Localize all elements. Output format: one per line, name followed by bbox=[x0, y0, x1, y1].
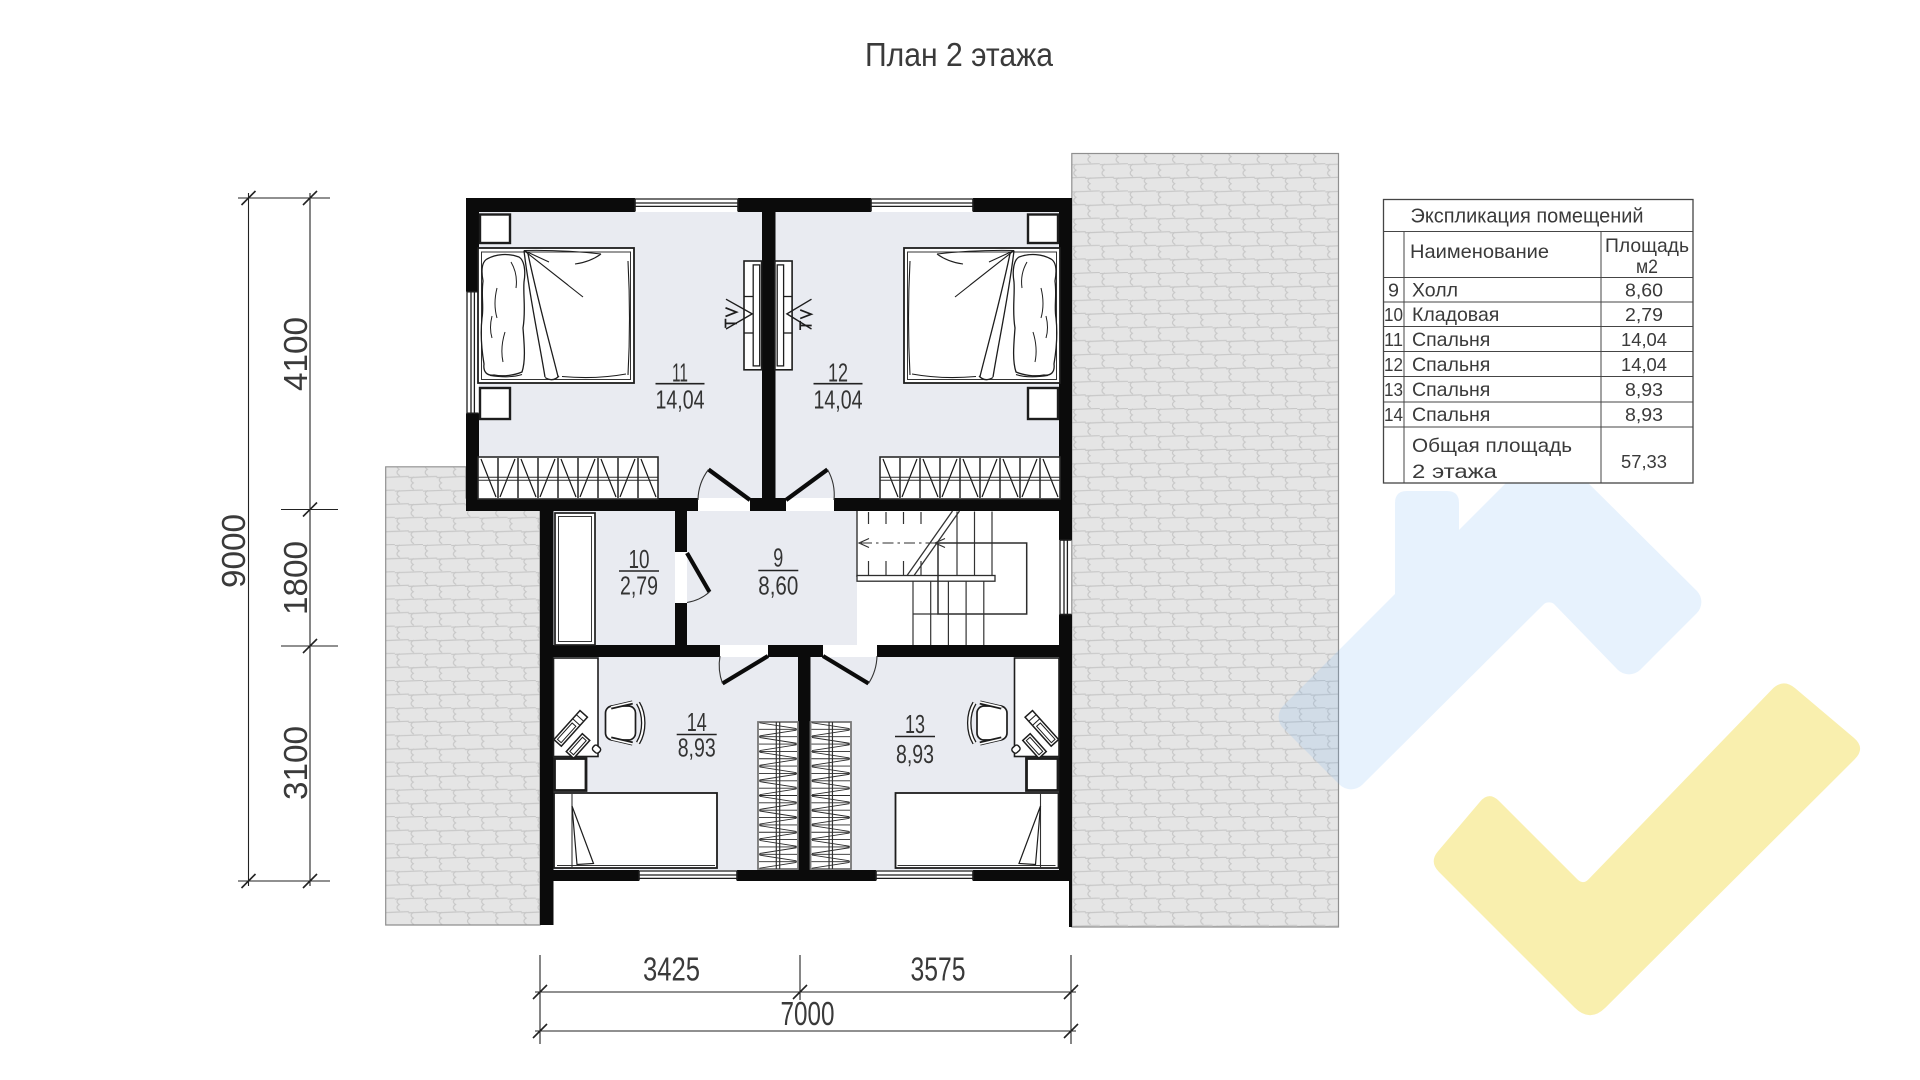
svg-text:8,93: 8,93 bbox=[678, 733, 716, 763]
svg-text:3100: 3100 bbox=[277, 726, 314, 800]
svg-text:14,04: 14,04 bbox=[656, 385, 705, 415]
svg-text:Холл: Холл bbox=[1412, 280, 1458, 302]
svg-text:9000: 9000 bbox=[215, 514, 252, 588]
svg-text:10: 10 bbox=[629, 544, 650, 574]
svg-text:3425: 3425 bbox=[643, 951, 700, 988]
svg-text:2,79: 2,79 bbox=[1625, 304, 1663, 325]
svg-text:7000: 7000 bbox=[781, 995, 835, 1032]
svg-text:9: 9 bbox=[773, 543, 783, 573]
svg-text:3575: 3575 bbox=[911, 951, 966, 988]
svg-text:Кладовая: Кладовая bbox=[1412, 304, 1499, 326]
svg-text:14,04: 14,04 bbox=[1621, 354, 1667, 375]
svg-text:2 этажа: 2 этажа bbox=[1412, 461, 1497, 483]
svg-text:11: 11 bbox=[1384, 329, 1403, 350]
svg-text:10: 10 bbox=[1384, 304, 1403, 325]
svg-text:57,33: 57,33 bbox=[1621, 451, 1667, 472]
svg-text:14,04: 14,04 bbox=[814, 385, 863, 415]
svg-text:13: 13 bbox=[905, 709, 925, 739]
svg-text:Наименование: Наименование bbox=[1410, 241, 1549, 263]
svg-text:Спальня: Спальня bbox=[1412, 329, 1490, 351]
svg-text:Общая площадь: Общая площадь bbox=[1412, 435, 1572, 457]
svg-text:13: 13 bbox=[1384, 379, 1403, 400]
svg-text:8,60: 8,60 bbox=[1625, 280, 1663, 301]
svg-text:14: 14 bbox=[1384, 404, 1403, 425]
svg-text:8,60: 8,60 bbox=[758, 571, 798, 601]
svg-text:м2: м2 bbox=[1636, 256, 1658, 278]
svg-text:Спальня: Спальня bbox=[1412, 404, 1490, 426]
svg-text:8,93: 8,93 bbox=[896, 739, 934, 769]
svg-text:Площадь: Площадь bbox=[1605, 235, 1689, 257]
svg-text:Экспликация помещений: Экспликация помещений bbox=[1411, 206, 1644, 228]
svg-text:План 2 этажа: План 2 этажа bbox=[865, 36, 1054, 73]
svg-text:14,04: 14,04 bbox=[1621, 329, 1667, 350]
svg-text:12: 12 bbox=[1384, 354, 1403, 375]
svg-text:1800: 1800 bbox=[277, 541, 314, 615]
svg-text:2,79: 2,79 bbox=[620, 571, 658, 601]
svg-text:8,93: 8,93 bbox=[1625, 379, 1663, 400]
svg-text:8,93: 8,93 bbox=[1625, 404, 1663, 425]
svg-text:Спальня: Спальня bbox=[1412, 354, 1490, 376]
svg-text:9: 9 bbox=[1388, 280, 1399, 301]
svg-text:Спальня: Спальня bbox=[1412, 379, 1490, 401]
svg-text:4100: 4100 bbox=[277, 317, 314, 391]
